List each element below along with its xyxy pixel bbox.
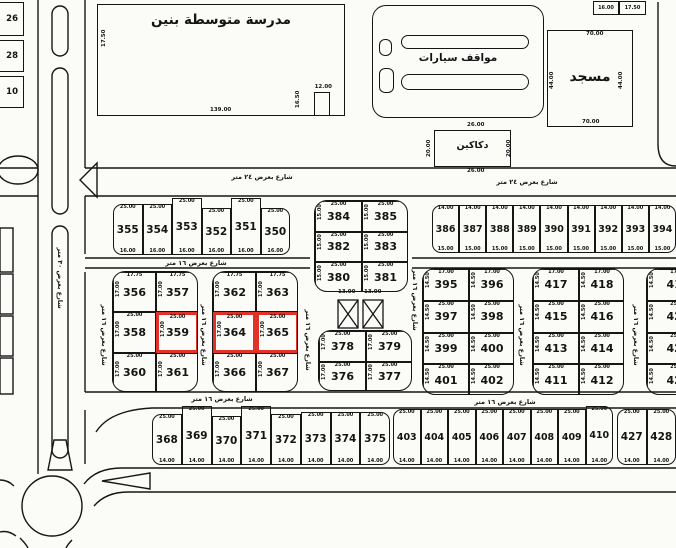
plot-386[interactable]: 38614.0015.00 <box>432 205 459 253</box>
street-label-v5: شارع بعرض ١٦ متر <box>518 304 526 365</box>
plot-dimension: 15.00 <box>318 265 323 281</box>
plot-384[interactable]: 38425.0015.00 <box>315 201 362 232</box>
plot-dimension: 14.50 <box>426 273 431 289</box>
plot-dimension: 17.00 <box>159 362 164 378</box>
plot-dimension: 25.00 <box>564 410 580 415</box>
edge-plot-2[interactable]: 28 <box>0 40 24 72</box>
plot-dimension: 14.00 <box>337 459 353 464</box>
plot-dimension: 17.00 <box>159 281 164 297</box>
plot-dimension: 25.00 <box>548 302 564 307</box>
plot-dimension: 25.00 <box>331 233 347 238</box>
school-notch-dim-side: 16.50 <box>296 90 302 107</box>
plot-365[interactable]: 36525.0017.00 <box>256 312 298 352</box>
plot-dimension: 25.00 <box>481 410 497 415</box>
plot-dimension: 17.00 <box>369 364 374 380</box>
plot-dimension: 15.00 <box>465 247 481 252</box>
plot-number: 354 <box>144 205 172 254</box>
plot-dimension: 25.00 <box>278 415 294 420</box>
plot-dimension: 25.00 <box>624 410 640 415</box>
shops-dim-left: 20.00 <box>427 140 433 157</box>
plot-dimension: 14.00 <box>399 459 415 464</box>
plot-361[interactable]: 36125.0017.00 <box>156 353 198 392</box>
plot-dimension: 25.00 <box>378 263 394 268</box>
plot-dimension: 17.00 <box>322 334 327 350</box>
plot-dimension: 14.00 <box>308 459 324 464</box>
plot-416[interactable]: 41625.0014.50 <box>579 301 624 333</box>
cadastral-map: مدرسة متوسطة بنين 17.50 139.00 12.00 16.… <box>0 0 676 548</box>
plot-dimension: 15.00 <box>600 247 616 252</box>
plot-396[interactable]: 39617.0014.50 <box>469 269 514 301</box>
plot-dimension: 14.50 <box>582 304 587 320</box>
plot-dimension: 25.00 <box>267 209 283 214</box>
plot-dimension: 25.00 <box>367 413 383 418</box>
plot-dimension: 25.00 <box>127 354 143 359</box>
street-label-lower-right: شارع بعرض ١٦ متر <box>474 398 535 406</box>
parking-block: مواقف سيارات <box>372 5 544 118</box>
plot-dimension: 15.00 <box>318 235 323 251</box>
school-notch <box>314 92 330 116</box>
plot-dimension: 17.00 <box>259 362 264 378</box>
plot-dimension: 25.00 <box>227 354 243 359</box>
plot-dimension: 25.00 <box>170 354 186 359</box>
left-edge-strip <box>0 228 13 394</box>
plot-dimension: 14.00 <box>159 459 175 464</box>
plot-dimension: 17.00 <box>161 321 166 337</box>
street-label-lower-left: شارع بعرض ١٦ متر <box>191 395 252 403</box>
plot-dimension: 25.00 <box>670 334 676 339</box>
plot-428[interactable]: 42825.0014.00 <box>647 409 676 465</box>
plot-400[interactable]: 40025.0014.50 <box>469 333 514 365</box>
plot-412[interactable]: 41225.0014.50 <box>579 364 624 395</box>
plot-number: 410 <box>587 407 613 464</box>
street-label-v2: شارع بعرض ١٦ متر <box>200 304 208 365</box>
plot-dimension: 15.00 <box>365 204 370 220</box>
plot-number: 375 <box>361 413 389 464</box>
plot-418[interactable]: 41817.0014.50 <box>579 269 624 301</box>
plot-number: 353 <box>173 199 201 254</box>
plot-389[interactable]: 38914.0015.00 <box>513 205 540 253</box>
plot-362[interactable]: 36217.7517.00 <box>213 272 256 312</box>
plot-dimension: 14.00 <box>367 459 383 464</box>
plot-block-G: 39517.0014.5039617.0014.5039725.0014.503… <box>422 268 514 395</box>
plot-dimension: 14.00 <box>600 206 616 211</box>
plot-382[interactable]: 38225.0015.00 <box>315 232 362 263</box>
plot-dimension: 17.00 <box>548 270 564 275</box>
plot-dimension: 25.00 <box>335 332 351 337</box>
plot-number: 351 <box>232 199 260 254</box>
street-label-top-left: شارع بعرض ٢٤ متر <box>231 173 292 181</box>
plot-415[interactable]: 41525.0014.50 <box>533 301 579 333</box>
plot-dimension: 25.00 <box>399 410 415 415</box>
plot-dimension: 25.00 <box>159 415 175 420</box>
plot-dimension: 25.00 <box>548 365 564 370</box>
plot-425[interactable]: 42525.0014.50 <box>647 364 676 395</box>
plot-394[interactable]: 39414.0015.00 <box>649 205 676 253</box>
plot-dimension: 15.00 <box>492 247 508 252</box>
parking-bar-bottom <box>401 74 529 90</box>
plot-dimension: 17.00 <box>670 270 676 275</box>
plot-387[interactable]: 38714.0015.00 <box>459 205 486 253</box>
plot-dimension: 17.00 <box>438 270 454 275</box>
street-label-v1: شارع بعرض ١٦ متر <box>100 304 108 365</box>
plot-401[interactable]: 40125.0014.50 <box>423 364 469 395</box>
plot-dimension: 15.00 <box>573 247 589 252</box>
plot-357[interactable]: 35717.7517.00 <box>156 272 198 312</box>
plot-405[interactable]: 40525.0014.00 <box>448 409 476 465</box>
plot-dimension: 16.00 <box>238 249 254 254</box>
plot-dimension: 17.00 <box>259 281 264 297</box>
plot-dimension: 25.00 <box>378 233 394 238</box>
plot-dimension: 17.00 <box>484 270 500 275</box>
mosque-dim-left: 44.00 <box>550 72 556 89</box>
plot-379[interactable]: 37925.0017.00 <box>366 331 412 362</box>
plot-427[interactable]: 42725.0014.00 <box>617 409 647 465</box>
plot-383[interactable]: 38325.0015.00 <box>362 232 408 263</box>
plot-352[interactable]: 35225.0016.00 <box>202 208 232 255</box>
edge-plot-1[interactable]: 26 <box>0 2 24 36</box>
plot-409[interactable]: 40925.0014.00 <box>558 409 586 465</box>
plot-373[interactable]: 37325.0014.00 <box>301 412 331 465</box>
plot-dimension: 25.00 <box>378 202 394 207</box>
plot-359[interactable]: 35925.0017.00 <box>156 312 198 352</box>
plot-375[interactable]: 37525.0014.00 <box>360 412 390 465</box>
street-label-v6: شارع بعرض ١٦ متر <box>632 304 640 365</box>
plot-block-B: 38425.0015.0038525.0015.0038225.0015.003… <box>314 200 408 292</box>
plot-block-F: 37825.0017.0037925.0017.0037625.0017.003… <box>318 330 412 391</box>
plot-number: 372 <box>272 415 300 464</box>
mosque-dim-top: 70.00 <box>586 32 603 38</box>
plot-378[interactable]: 37825.0017.00 <box>319 331 366 362</box>
plot-dimension: 14.50 <box>650 336 655 352</box>
shops-dim-bottom: 26.00 <box>467 169 484 175</box>
plot-dimension: 14.00 <box>536 459 552 464</box>
street-label-main-road: شارع بعرض ٣٠ متر <box>56 247 64 308</box>
school-notch-dim-top: 12.00 <box>315 85 332 91</box>
edge-plot-3[interactable]: 10 <box>0 76 24 108</box>
plot-dimension: 14.50 <box>536 368 541 384</box>
plot-block-H: 41717.0014.5041817.0014.5041525.0014.504… <box>532 268 624 395</box>
plot-356[interactable]: 35617.7517.00 <box>113 272 156 312</box>
plot-dimension: 14.00 <box>218 459 234 464</box>
plot-413[interactable]: 41325.0014.50 <box>533 333 579 365</box>
plot-350[interactable]: 35025.0016.00 <box>261 208 291 255</box>
plot-dimension: 14.00 <box>564 459 580 464</box>
plot-dimension: 17.00 <box>369 334 374 350</box>
plot-402[interactable]: 40225.0014.50 <box>469 364 514 395</box>
plot-number: 404 <box>422 410 448 464</box>
plot-dimension: 14.50 <box>472 304 477 320</box>
plot-dimension: 25.00 <box>149 205 165 210</box>
plot-dimension: 25.00 <box>331 202 347 207</box>
plot-dimension: 25.00 <box>670 365 676 370</box>
plot-dimension: 16.00 <box>208 249 224 254</box>
plot-414[interactable]: 41425.0014.50 <box>579 333 624 365</box>
plot-dimension: 17.00 <box>322 364 327 380</box>
plot-dimension: 14.00 <box>189 459 205 464</box>
plot-392[interactable]: 39214.0015.00 <box>595 205 622 253</box>
plot-dimension: 15.00 <box>627 247 643 252</box>
plot-dimension: 25.00 <box>484 365 500 370</box>
school-dim-bottom: 139.00 <box>210 108 231 114</box>
plot-dimension: 14.50 <box>650 304 655 320</box>
school-block: مدرسة متوسطة بنين 17.50 139.00 12.00 16.… <box>97 4 345 116</box>
shops-dim-right: 20.00 <box>507 140 513 157</box>
plot-395[interactable]: 39517.0014.50 <box>423 269 469 301</box>
plot-dimension: 16.00 <box>149 249 165 254</box>
plot-419[interactable]: 41917.0014.50 <box>647 269 676 301</box>
plot-dimension: 14.00 <box>454 459 470 464</box>
plot-406[interactable]: 40625.0014.00 <box>476 409 504 465</box>
shops-label: دكاكين <box>435 140 510 151</box>
plot-421[interactable]: 42125.0014.50 <box>647 301 676 333</box>
plot-dimension: 14.00 <box>481 459 497 464</box>
plot-number: 427 <box>618 410 646 464</box>
plot-399[interactable]: 39925.0014.50 <box>423 333 469 365</box>
plot-dimension: 25.00 <box>308 413 324 418</box>
plot-dimension: 25.00 <box>179 199 195 204</box>
plot-dimension: 25.00 <box>594 365 610 370</box>
plot-dimension: 17.00 <box>594 270 610 275</box>
plot-360[interactable]: 36025.0017.00 <box>113 353 156 392</box>
plot-397[interactable]: 39725.0014.50 <box>423 301 469 333</box>
plot-369[interactable]: 36925.0014.00 <box>182 406 212 465</box>
plot-number: 355 <box>114 205 142 254</box>
mosque-dim-bottom: 70.00 <box>582 120 599 126</box>
parking-kiosk-1 <box>379 39 392 56</box>
plot-dimension: 25.00 <box>170 315 186 320</box>
plot-372[interactable]: 37225.0014.00 <box>271 414 301 465</box>
street-label-top-right: شارع بعرض ٢٤ متر <box>496 178 557 186</box>
plot-dimension: 15.00 <box>365 265 370 281</box>
plot-dimension: 25.00 <box>120 205 136 210</box>
plot-423[interactable]: 42325.0014.50 <box>647 333 676 365</box>
plot-354[interactable]: 35425.0016.00 <box>143 204 173 255</box>
plot-dimension: 17.75 <box>270 273 286 278</box>
plot-dimension: 14.00 <box>278 459 294 464</box>
parking-label: مواقف سيارات <box>373 52 543 64</box>
plot-dimension: 14.00 <box>438 206 454 211</box>
plot-dimension: 25.00 <box>335 363 351 368</box>
plot-number: 406 <box>477 410 503 464</box>
plot-number: 428 <box>648 410 676 464</box>
plot-dimension: 14.00 <box>519 206 535 211</box>
plot-dimension: 25.00 <box>594 334 610 339</box>
plot-dimension: 25.00 <box>536 410 552 415</box>
plot-dimension: 25.00 <box>548 334 564 339</box>
bottom-street <box>84 468 676 506</box>
plot-380[interactable]: 38025.0015.00 <box>315 262 362 292</box>
plot-number: 373 <box>302 413 330 464</box>
plot-dimension: 17.75 <box>170 273 186 278</box>
plot-dimension: 14.50 <box>426 304 431 320</box>
plot-353[interactable]: 35325.0016.00 <box>172 198 202 255</box>
plot-dimension: 16.00 <box>179 249 195 254</box>
plot-393[interactable]: 39314.0015.00 <box>622 205 649 253</box>
plot-364[interactable]: 36425.0017.00 <box>213 312 256 352</box>
plot-dimension: 14.50 <box>472 368 477 384</box>
plot-366[interactable]: 36625.0017.00 <box>213 353 256 392</box>
plot-dimension: 17.75 <box>227 273 243 278</box>
right-road-curve <box>658 2 676 166</box>
plot-dimension: 17.00 <box>218 321 223 337</box>
plot-dimension: 25.00 <box>218 417 234 422</box>
mosque-block: مسجد 70.00 70.00 44.00 44.00 <box>547 30 633 127</box>
plot-number: 405 <box>449 410 475 464</box>
plot-dimension: 25.00 <box>454 410 470 415</box>
plot-dimension: 25.00 <box>238 199 254 204</box>
plot-398[interactable]: 39825.0014.50 <box>469 301 514 333</box>
plot-dimension: 14.50 <box>582 368 587 384</box>
plot-dimension: 15.00 <box>365 235 370 251</box>
plot-dimension: 14.00 <box>248 459 264 464</box>
plot-number: 369 <box>183 407 211 464</box>
plot-dimension: 14.00 <box>655 206 671 211</box>
plot-381[interactable]: 38125.0015.00 <box>362 262 408 292</box>
plot-dimension: 25.00 <box>382 332 398 337</box>
plot-block-I: 41917.0014.5042125.0014.5042325.0014.504… <box>646 268 676 395</box>
plot-dimension: 25.00 <box>438 302 454 307</box>
plot-dimension: 25.00 <box>653 410 669 415</box>
plot-dimension: 14.50 <box>472 273 477 289</box>
school-label: مدرسة متوسطة بنين <box>98 12 344 28</box>
plot-dimension: 17.00 <box>116 362 121 378</box>
plot-377[interactable]: 37725.0017.00 <box>366 362 412 392</box>
plot-dimension: 15.00 <box>519 247 535 252</box>
plot-dimension: 25.00 <box>591 407 607 412</box>
plot-370[interactable]: 37025.0014.00 <box>212 416 242 465</box>
plot-number: 370 <box>213 417 241 464</box>
plot-dimension: 15.00 <box>546 247 562 252</box>
plot-dimension: 14.00 <box>546 206 562 211</box>
plot-404[interactable]: 40425.0014.00 <box>421 409 449 465</box>
plot-number: 371 <box>242 407 270 464</box>
plot-368[interactable]: 36825.0014.00 <box>152 414 182 465</box>
plot-dimension: 14.00 <box>627 206 643 211</box>
plot-dimension: 25.00 <box>594 302 610 307</box>
plot-dimension: 14.00 <box>509 459 525 464</box>
plot-dimension: 14.00 <box>426 459 442 464</box>
plot-367[interactable]: 36725.0017.00 <box>256 353 298 392</box>
plot-358[interactable]: 35825.0017.00 <box>113 312 156 352</box>
plot-dimension: 25.00 <box>382 363 398 368</box>
corner-cell-2: 17.50 <box>619 1 646 15</box>
plot-number: 408 <box>532 410 558 464</box>
plot-dimension: 14.50 <box>582 273 587 289</box>
plot-376[interactable]: 37625.0017.00 <box>319 362 366 392</box>
plot-number: 368 <box>153 415 181 464</box>
plot-dimension: 25.00 <box>484 334 500 339</box>
plot-dimension: 14.00 <box>653 459 669 464</box>
plot-411[interactable]: 41125.0014.50 <box>533 364 579 395</box>
plot-408[interactable]: 40825.0014.00 <box>531 409 559 465</box>
plot-dimension: 14.00 <box>591 459 607 464</box>
plot-dimension: 14.00 <box>465 206 481 211</box>
plot-dimension: 17.00 <box>116 321 121 337</box>
plot-number: 409 <box>559 410 585 464</box>
plot-363[interactable]: 36317.7517.00 <box>256 272 298 312</box>
plot-410[interactable]: 41025.0014.00 <box>586 406 614 465</box>
plot-dimension: 25.00 <box>270 315 286 320</box>
plot-dimension: 25.00 <box>438 365 454 370</box>
plot-dimension: 14.50 <box>650 273 655 289</box>
parking-kiosk-2 <box>379 68 394 93</box>
plot-390[interactable]: 39014.0015.00 <box>540 205 567 253</box>
plot-dimension: 14.50 <box>536 273 541 289</box>
school-dim-left: 17.50 <box>102 30 108 47</box>
plot-number: 374 <box>332 413 360 464</box>
plot-dimension: 15.00 <box>318 204 323 220</box>
parking-bar-top <box>401 35 529 49</box>
roundabout <box>0 440 150 548</box>
plot-407[interactable]: 40725.0014.00 <box>503 409 531 465</box>
plot-dimension: 25.00 <box>509 410 525 415</box>
plot-391[interactable]: 39114.0015.00 <box>568 205 595 253</box>
plot-dimension: 14.50 <box>426 368 431 384</box>
plot-dimension: 14.00 <box>492 206 508 211</box>
plot-dimension: 14.50 <box>472 336 477 352</box>
plot-dimension: 17.00 <box>261 321 266 337</box>
plot-dimension: 25.00 <box>248 407 264 412</box>
plot-351[interactable]: 35125.0016.00 <box>231 198 261 255</box>
plot-dimension: 25.00 <box>426 410 442 415</box>
plot-dimension: 25.00 <box>484 302 500 307</box>
plot-371[interactable]: 37125.0014.00 <box>241 406 271 465</box>
plot-dimension: 25.00 <box>227 315 243 320</box>
corner-cell-1: 16.00 <box>593 1 619 15</box>
street-label-v4: شارع بعرض ١٦ متر <box>411 269 419 330</box>
plot-403[interactable]: 40325.0014.00 <box>393 409 421 465</box>
top-street <box>0 156 676 197</box>
plot-dimension: 25.00 <box>337 413 353 418</box>
plot-dimension: 25.00 <box>189 407 205 412</box>
plot-dimension: 25.00 <box>270 354 286 359</box>
mosque-dim-right: 44.00 <box>619 72 625 89</box>
plot-dimension: 16.00 <box>267 249 283 254</box>
plot-dimension: 25.00 <box>438 334 454 339</box>
plot-dimension: 25.00 <box>331 263 347 268</box>
plot-dimension: 14.50 <box>536 336 541 352</box>
shops-dim-top: 26.00 <box>467 123 484 129</box>
plot-dimension: 25.00 <box>670 302 676 307</box>
plot-dimension: 14.00 <box>573 206 589 211</box>
plot-number: 403 <box>394 410 420 464</box>
plot-dimension: 25.00 <box>208 209 224 214</box>
plot-dimension: 14.50 <box>536 304 541 320</box>
plot-dimension: 17.00 <box>216 281 221 297</box>
plot-388[interactable]: 38814.0015.00 <box>486 205 513 253</box>
plot-number: 407 <box>504 410 530 464</box>
shops-block: دكاكين 26.00 26.00 20.00 20.00 <box>434 130 511 167</box>
street-label-mid-left: شارع بعرض ١٦ متر <box>165 259 226 267</box>
street-label-v3: شارع بعرض ١٦ متر <box>304 309 312 370</box>
traffic-island-oval <box>0 156 38 184</box>
plot-block-E: 36217.7517.0036317.7517.0036425.0017.003… <box>212 271 298 392</box>
utility-block <box>332 296 390 332</box>
plot-385[interactable]: 38525.0015.00 <box>362 201 408 232</box>
plot-417[interactable]: 41717.0014.50 <box>533 269 579 301</box>
plot-dimension: 16.00 <box>120 249 136 254</box>
plot-355[interactable]: 35525.0016.00 <box>113 204 143 255</box>
plot-dimension: 14.50 <box>582 336 587 352</box>
plot-dimension: 15.00 <box>438 247 454 252</box>
plot-dimension: 14.50 <box>426 336 431 352</box>
plot-374[interactable]: 37425.0014.00 <box>331 412 361 465</box>
plot-dimension: 25.00 <box>127 313 143 318</box>
plot-dimension: 14.50 <box>650 368 655 384</box>
plot-dimension: 14.00 <box>624 459 640 464</box>
plot-block-D: 35617.7517.0035717.7517.0035825.0017.003… <box>112 271 198 392</box>
plot-dimension: 17.00 <box>116 281 121 297</box>
